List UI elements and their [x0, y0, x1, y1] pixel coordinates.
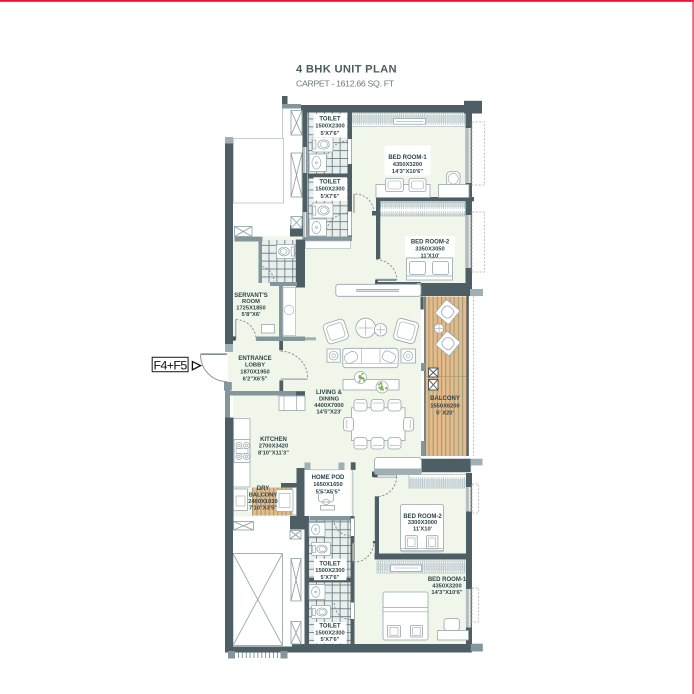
svg-text:BED ROOM-2: BED ROOM-2 — [411, 240, 450, 246]
svg-text:1500X2300: 1500X2300 — [315, 187, 344, 193]
svg-text:ENTRANCE: ENTRANCE — [238, 356, 271, 362]
svg-text:3300X3000: 3300X3000 — [408, 520, 437, 526]
svg-text:2700X3420: 2700X3420 — [259, 444, 288, 450]
svg-text:DRY: DRY — [257, 486, 269, 492]
svg-text:CARPET - 1612.66 SQ. FT: CARPET - 1612.66 SQ. FT — [296, 79, 395, 89]
svg-text:14'3"X10'6": 14'3"X10'6" — [392, 169, 423, 175]
svg-text:5'X7'6": 5'X7'6" — [321, 194, 340, 200]
svg-text:1550X6200: 1550X6200 — [430, 403, 459, 409]
svg-text:4400X7000: 4400X7000 — [314, 403, 343, 409]
svg-text:6'2"X6'5": 6'2"X6'5" — [243, 377, 268, 383]
svg-text:KITCHEN: KITCHEN — [260, 437, 287, 443]
svg-text:F4+F5: F4+F5 — [154, 358, 188, 372]
svg-text:BED ROOM-2: BED ROOM-2 — [403, 514, 442, 520]
svg-text:TOILET: TOILET — [319, 116, 341, 122]
svg-text:BED ROOM-1: BED ROOM-1 — [428, 577, 467, 583]
svg-text:5' X20': 5' X20' — [436, 411, 454, 417]
svg-text:BALCONY: BALCONY — [430, 396, 460, 402]
svg-text:4 BHK UNIT PLAN: 4 BHK UNIT PLAN — [296, 64, 397, 76]
svg-text:7'10"X3'5": 7'10"X3'5" — [249, 506, 277, 512]
svg-text:3350X3050: 3350X3050 — [415, 247, 444, 253]
svg-text:1650X1650: 1650X1650 — [313, 482, 342, 488]
svg-text:2400X1030: 2400X1030 — [248, 499, 277, 505]
svg-text:TOILET: TOILET — [319, 179, 341, 185]
svg-text:5'X7'6": 5'X7'6" — [321, 575, 340, 581]
svg-text:ROOM: ROOM — [242, 299, 260, 305]
svg-text:14'3"X10'6": 14'3"X10'6" — [431, 590, 462, 596]
svg-text:5'5"X5'5": 5'5"X5'5" — [316, 489, 341, 495]
svg-text:1870X1950: 1870X1950 — [240, 370, 269, 376]
svg-text:14'5"X23': 14'5"X23' — [316, 410, 342, 416]
svg-text:HOME POD: HOME POD — [312, 475, 345, 481]
svg-text:1500X2300: 1500X2300 — [315, 630, 344, 636]
svg-text:TOILET: TOILET — [319, 624, 341, 630]
svg-text:BALCONY: BALCONY — [249, 493, 278, 499]
svg-text:4350X3200: 4350X3200 — [393, 162, 422, 168]
svg-text:1500X2300: 1500X2300 — [315, 124, 344, 130]
svg-text:4350X3200: 4350X3200 — [432, 584, 461, 590]
svg-text:1725X1850: 1725X1850 — [236, 306, 265, 312]
svg-text:11'X10': 11'X10' — [420, 254, 440, 260]
svg-text:5'X7'6": 5'X7'6" — [321, 637, 340, 643]
svg-text:DINING: DINING — [319, 397, 340, 403]
svg-text:1500X2300: 1500X2300 — [315, 568, 344, 574]
svg-text:5'8"X6': 5'8"X6' — [242, 312, 262, 318]
svg-text:LOBBY: LOBBY — [245, 363, 265, 369]
svg-text:BED ROOM-1: BED ROOM-1 — [388, 155, 427, 161]
svg-text:11'X10': 11'X10' — [413, 526, 433, 532]
svg-text:LIVING &: LIVING & — [316, 390, 343, 396]
svg-text:TOILET: TOILET — [319, 561, 341, 567]
svg-text:SERVANT'S: SERVANT'S — [234, 293, 268, 299]
svg-text:5'X7'6": 5'X7'6" — [321, 131, 340, 137]
svg-text:8'10"X11'3": 8'10"X11'3" — [258, 450, 289, 456]
